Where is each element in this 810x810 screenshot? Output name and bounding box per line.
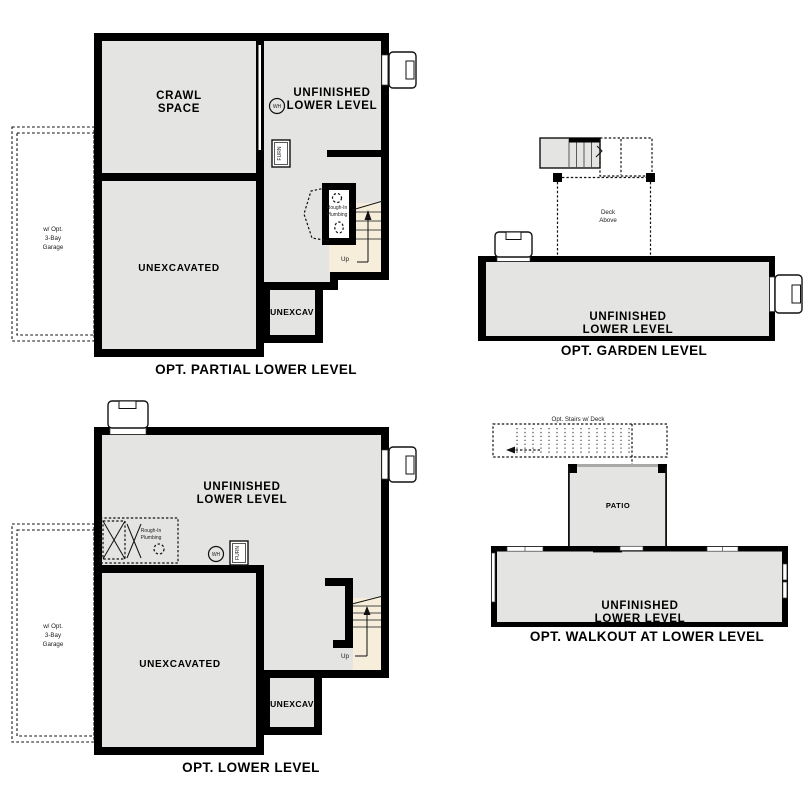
furnace: FURN [272, 140, 290, 167]
plan-caption: OPT. WALKOUT AT LOWER LEVEL [530, 629, 764, 644]
deck-boards [517, 428, 629, 453]
plan-caption: OPT. LOWER LEVEL [182, 760, 320, 775]
sliding-door-panel [593, 549, 622, 552]
sliding-door-glass [620, 546, 643, 550]
stair-direction-arrow-icon [506, 447, 515, 454]
water-heater: WH [209, 547, 224, 562]
floorplan-drawing: WH FURN CRAWL SPACE UNFINISHED LOWER LEV… [0, 0, 810, 810]
exterior-stairs [540, 138, 602, 168]
up-label: Up [341, 256, 350, 263]
water-heater: WH [270, 99, 285, 114]
plan-caption: OPT. PARTIAL LOWER LEVEL [155, 362, 357, 377]
unexcavated-label: UNEXCAVATED [138, 263, 220, 274]
crawl-space-label-line2: SPACE [158, 103, 200, 115]
egress-window [770, 275, 802, 313]
plan-caption: OPT. GARDEN LEVEL [561, 343, 707, 358]
floorplan-sheet: WH FURN CRAWL SPACE UNFINISHED LOWER LEV… [0, 0, 810, 810]
furnace-label: FURN [277, 146, 283, 160]
deck-post [646, 173, 655, 182]
unfinished-label-line1: UNFINISHED [203, 481, 280, 493]
up-label: Up [341, 653, 350, 660]
garage-label-line3: Garage [43, 641, 64, 648]
furnace-label: FURN [235, 546, 241, 560]
crawl-space-label-line1: CRAWL [156, 90, 202, 102]
deck-above-label-line2: Above [599, 217, 617, 224]
water-heater-label: WH [212, 552, 221, 558]
rough-in-label-line1: Rough-In [327, 205, 348, 211]
deck-post [553, 173, 562, 182]
furnace: FURN [230, 541, 248, 565]
plan-opt-garden-level: Deck Above UNFINISHED LOWER LEVEL OPT. G… [478, 138, 802, 358]
garage-option-outline [12, 127, 94, 341]
garage-label-line1: w/ Opt. [42, 226, 63, 233]
deck-above-label-line1: Deck [601, 209, 616, 216]
plan-opt-partial-lower-level: WH FURN CRAWL SPACE UNFINISHED LOWER LEV… [12, 33, 416, 377]
stairs [352, 596, 383, 670]
unfinished-label-line1: UNFINISHED [601, 600, 678, 612]
opt-stairs-deck-outline [493, 424, 667, 464]
egress-window [382, 52, 416, 88]
unexcav-label: UNEXCAV [270, 699, 314, 709]
unfinished-label-line2: LOWER LEVEL [287, 100, 378, 112]
garage-label-line3: Garage [43, 244, 64, 251]
egress-window [382, 447, 416, 482]
unfinished-label-line2: LOWER LEVEL [595, 613, 686, 625]
unfinished-label-line2: LOWER LEVEL [197, 494, 288, 506]
unfinished-label-line1: UNFINISHED [589, 311, 666, 323]
unfinished-label-line1: UNFINISHED [293, 87, 370, 99]
rough-in-label-line1: Rough-In [141, 528, 162, 534]
unexcav-label: UNEXCAV [270, 307, 314, 317]
garage-label-line1: w/ Opt. [42, 623, 63, 630]
unexcavated-label: UNEXCAVATED [139, 659, 221, 670]
egress-window [495, 232, 532, 261]
egress-window [108, 401, 148, 434]
unfinished-label-line2: LOWER LEVEL [583, 324, 674, 336]
plan-opt-lower-level: WH FURN UNFINISHED LOWER LEVEL Rough-In … [12, 401, 416, 775]
water-heater-label: WH [273, 104, 282, 110]
garage-label-line2: 3-Bay [45, 632, 62, 639]
rough-in-label-line2: Plumbing [327, 212, 348, 218]
patio-label: PATIO [606, 501, 630, 510]
rough-in-label-line2: Plumbing [141, 535, 162, 541]
plan-opt-walkout-at-lower-level: Opt. Stairs w/ Deck PATIO UNFINISHED LOW… [491, 416, 788, 644]
opt-stairs-label: Opt. Stairs w/ Deck [552, 416, 606, 423]
garage-label-line2: 3-Bay [45, 235, 62, 242]
